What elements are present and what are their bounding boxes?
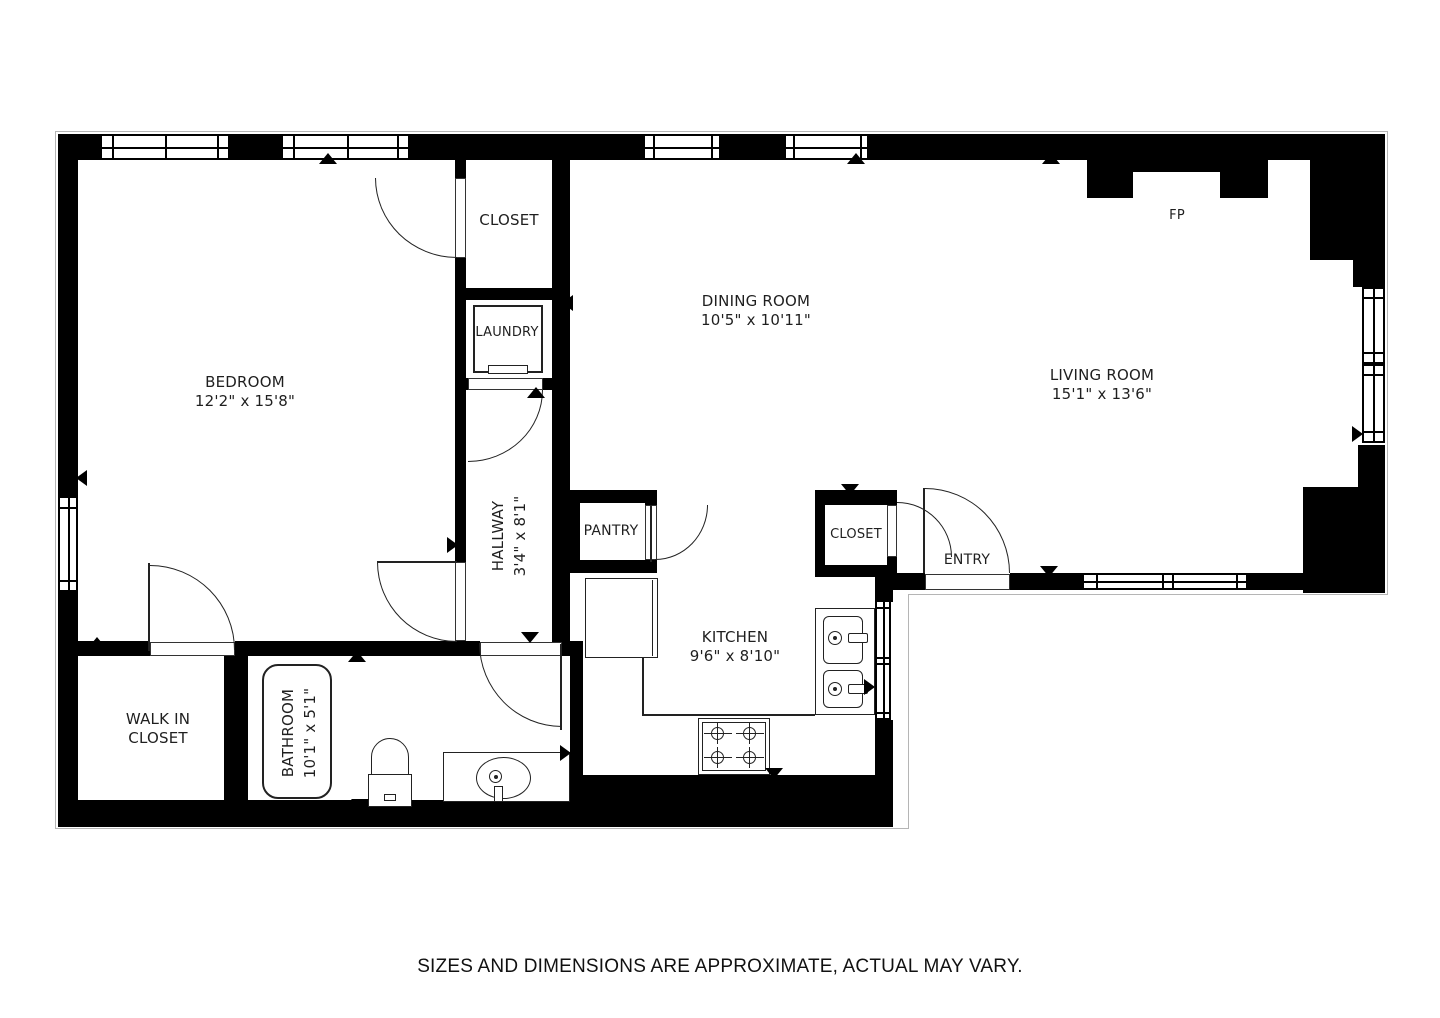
direction-marker (1040, 566, 1058, 577)
vanity-sink-icon (476, 757, 531, 799)
direction-marker (1042, 153, 1060, 164)
room-label-hallway: HALLWAY3'4" x 8'1" (488, 446, 534, 626)
window (1362, 364, 1385, 443)
label-closet-top: CLOSET (459, 211, 559, 230)
closet-wall (887, 557, 897, 577)
wall (570, 642, 583, 800)
fireplace-wall (1133, 160, 1220, 172)
faucet-dot (833, 687, 837, 691)
wall (1248, 573, 1303, 590)
wall (455, 258, 466, 390)
door-swing-arc (479, 643, 562, 727)
wall (552, 160, 570, 650)
wall (1303, 487, 1385, 593)
wall (893, 573, 925, 590)
door-swing-arc (375, 178, 457, 258)
room-label-bedroom: BEDROOM12'2" x 15'8" (145, 373, 345, 411)
direction-marker (562, 295, 573, 311)
wall (583, 775, 893, 827)
window (100, 134, 230, 160)
wall (455, 160, 466, 178)
wall (875, 577, 893, 602)
direction-marker (447, 537, 458, 553)
room-label-living: LIVING ROOM15'1" x 13'6" (1002, 366, 1202, 404)
room-label-bathroom: BATHROOM10'1" x 5'1" (278, 648, 324, 818)
direction-marker (841, 484, 859, 495)
counter-edge (642, 714, 815, 716)
direction-marker (88, 637, 106, 648)
exterior-outline (908, 594, 909, 829)
wall (1358, 445, 1385, 487)
door-swing-arc (655, 505, 708, 560)
label-laundry: LAUNDRY (457, 325, 557, 341)
faucet-dot (494, 775, 498, 779)
direction-marker (561, 548, 572, 564)
wall (455, 378, 468, 390)
exterior-outline (55, 131, 56, 828)
room-label-kitchen: KITCHEN9'6" x 8'10" (635, 628, 835, 666)
burner-icon (711, 727, 724, 740)
direction-marker (765, 768, 783, 779)
burner-icon (711, 751, 724, 764)
door-swing-arc (150, 565, 235, 650)
fireplace-wall (1087, 160, 1133, 198)
pantry-wall (645, 490, 657, 505)
wall (455, 288, 552, 300)
disclaimer-text: SIZES AND DIMENSIONS ARE APPROXIMATE, AC… (0, 956, 1440, 978)
label-fireplace: FP (1147, 208, 1207, 224)
door-swing-arc (377, 562, 457, 642)
vanity-stem (494, 786, 503, 802)
direction-marker (527, 387, 545, 398)
direction-marker (1352, 426, 1363, 442)
exterior-outline (908, 594, 1388, 595)
direction-marker (348, 651, 366, 662)
wall (58, 134, 1385, 160)
burner-icon (743, 727, 756, 740)
label-pantry: PANTRY (561, 523, 661, 541)
pantry-wall (570, 490, 657, 503)
closet-wall (815, 565, 897, 577)
direction-marker (76, 470, 87, 486)
toilet-button (384, 794, 396, 801)
door-opening (925, 574, 1010, 590)
window (875, 600, 891, 720)
exterior-outline (55, 131, 1388, 132)
wall (58, 160, 78, 496)
direction-marker (847, 153, 865, 164)
exterior-outline (55, 828, 909, 829)
direction-marker (319, 153, 337, 164)
label-entry-closet: CLOSET (806, 527, 906, 543)
toilet-tank-icon (368, 774, 412, 807)
window (58, 496, 78, 592)
wall (875, 720, 893, 777)
window (281, 134, 410, 160)
direction-marker (864, 679, 875, 695)
fireplace-wall (1220, 160, 1268, 198)
pantry-wall (580, 560, 657, 573)
wall (1310, 160, 1385, 260)
counter-edge (642, 658, 644, 715)
room-label-walk-in-closet: WALK INCLOSET (78, 710, 238, 748)
floor-plan: BEDROOM12'2" x 15'8" DINING ROOM10'5" x … (0, 0, 1440, 1018)
burner-icon (743, 751, 756, 764)
label-entry: ENTRY (917, 552, 1017, 570)
window (1082, 573, 1248, 590)
exterior-outline (1387, 131, 1388, 595)
direction-marker (560, 745, 571, 761)
faucet-handle (848, 633, 868, 643)
window (643, 134, 721, 160)
wall (1353, 260, 1385, 287)
washer-tray (488, 365, 528, 374)
direction-marker (351, 799, 369, 810)
direction-marker (521, 632, 539, 643)
room-label-dining: DINING ROOM10'5" x 10'11" (656, 292, 856, 330)
window (1362, 287, 1385, 364)
wall (58, 591, 78, 801)
